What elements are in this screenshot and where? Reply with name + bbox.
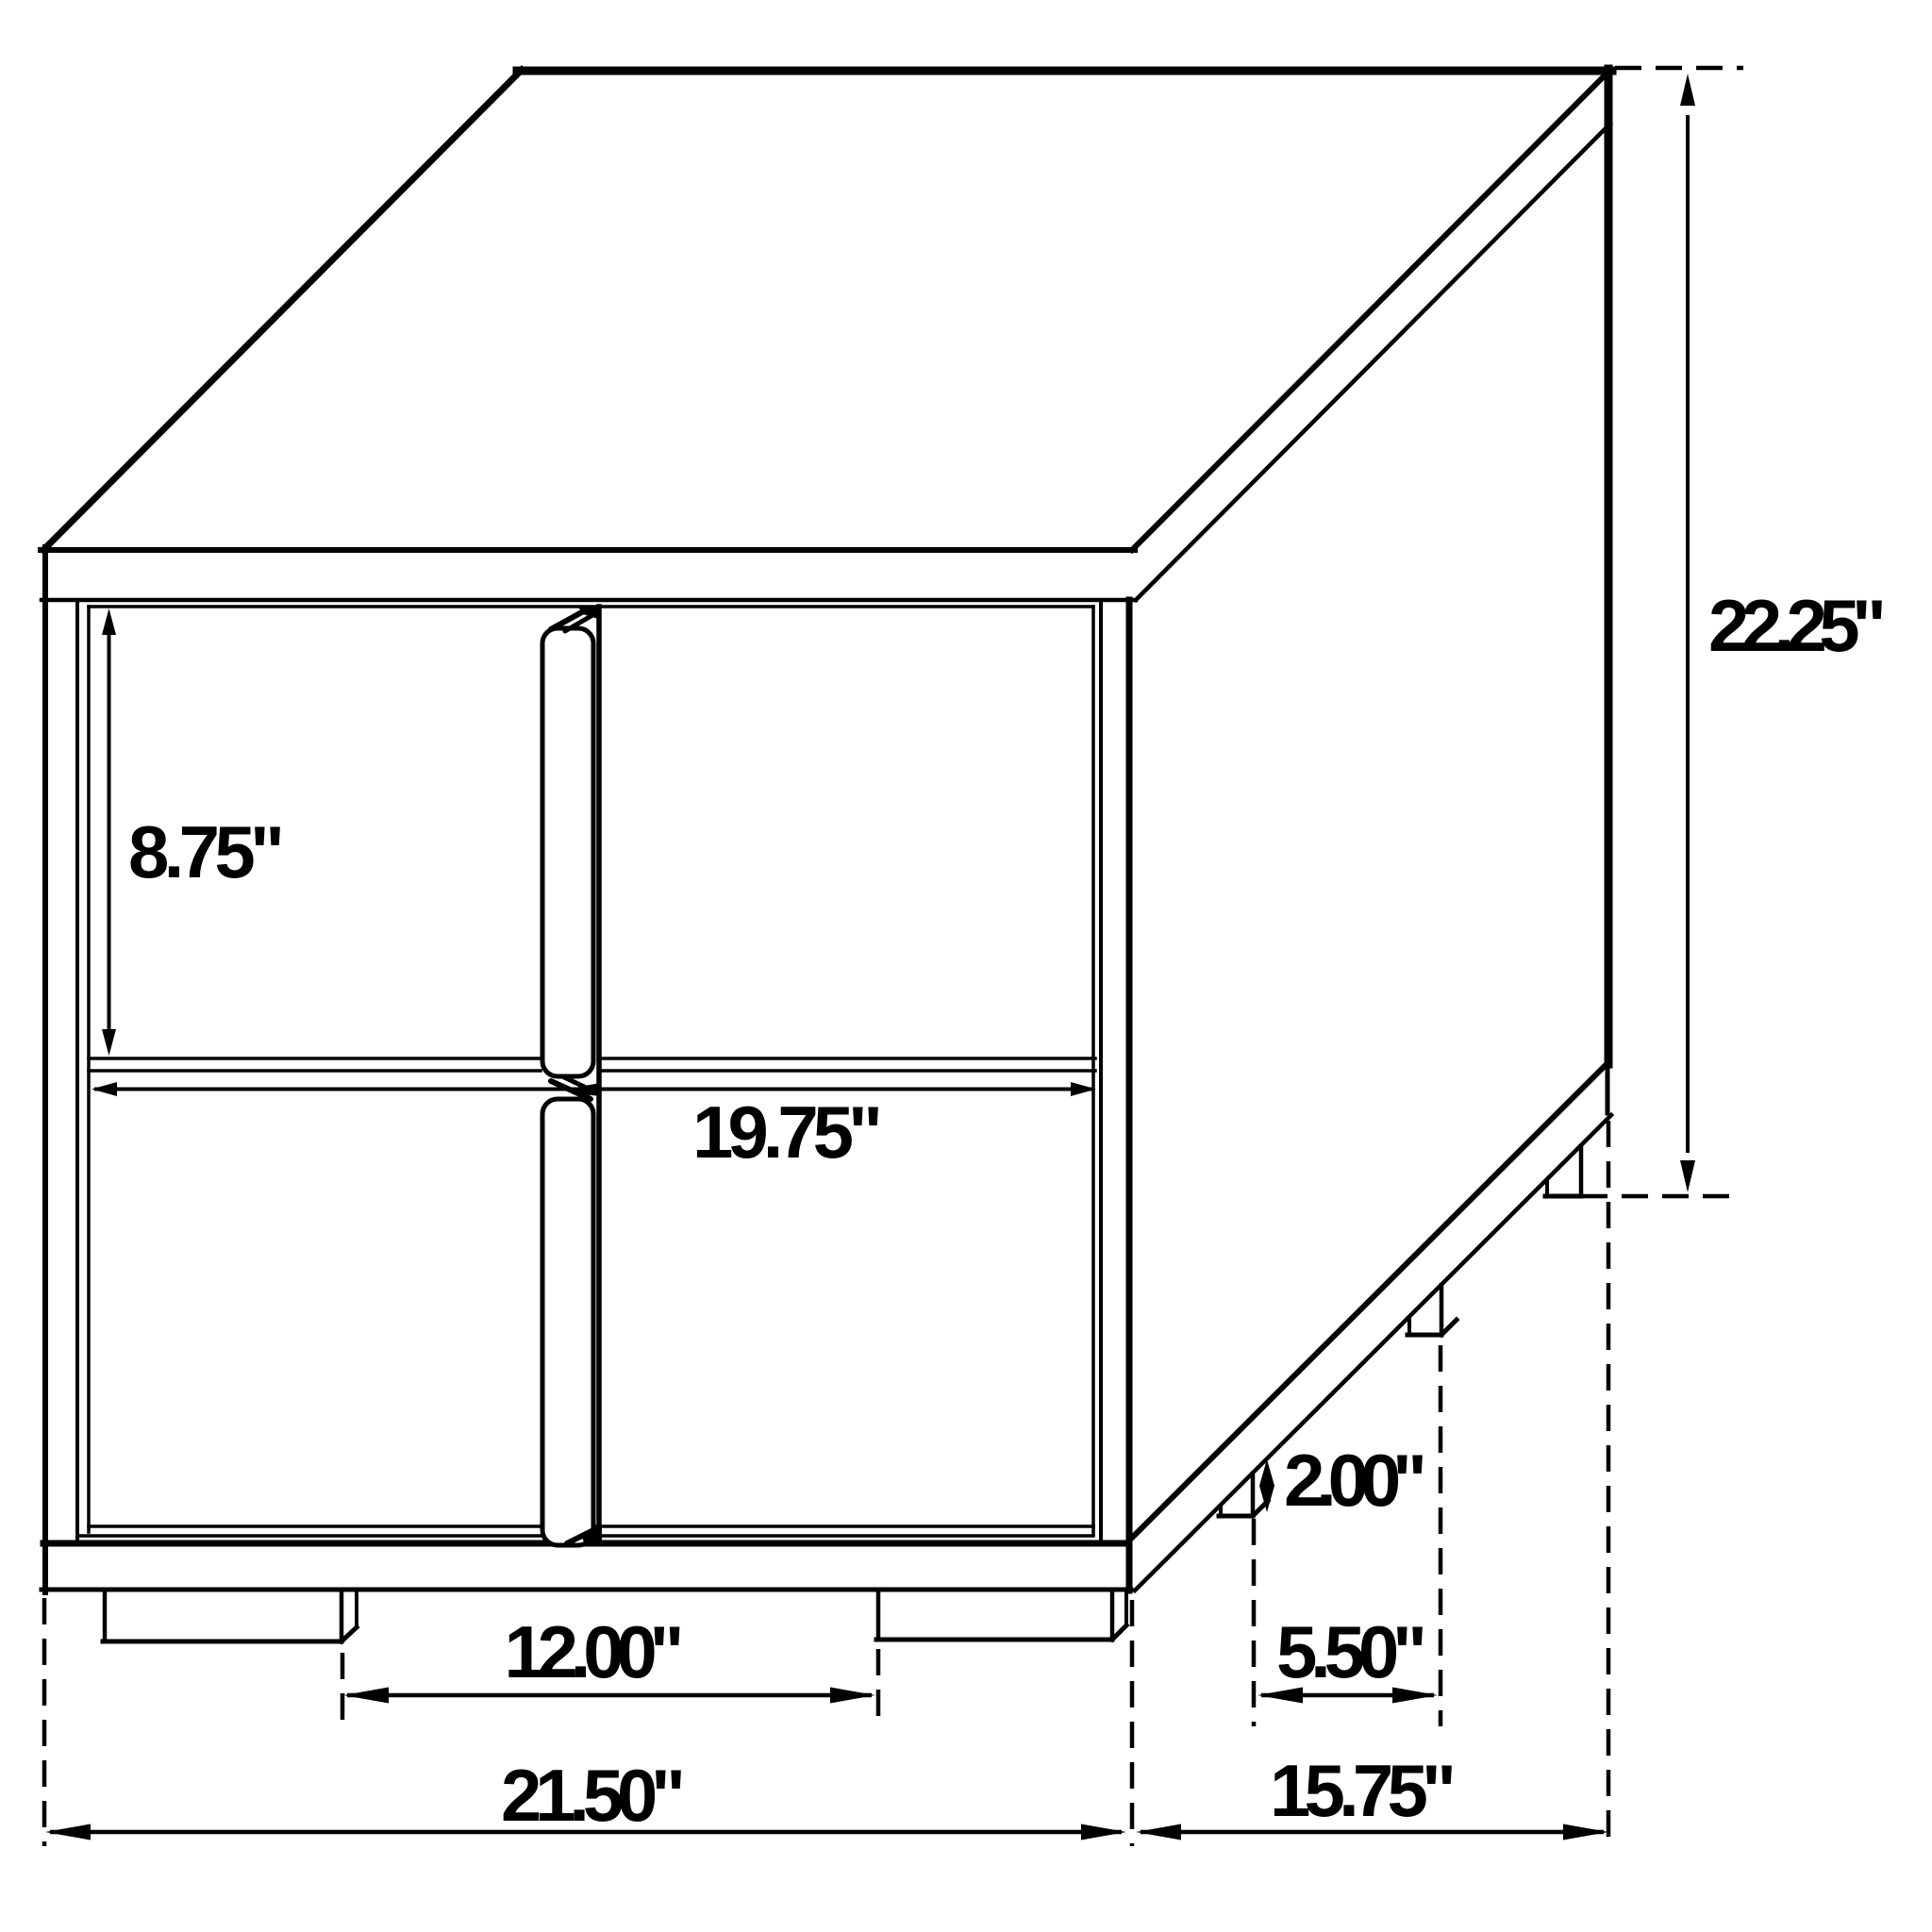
svg-text:21.50": 21.50" (501, 1754, 686, 1837)
svg-text:5.50": 5.50" (1276, 1610, 1427, 1693)
svg-text:2.00": 2.00" (1284, 1439, 1427, 1522)
svg-text:19.75": 19.75" (692, 1091, 883, 1174)
svg-text:22.25": 22.25" (1708, 584, 1887, 667)
svg-text:8.75": 8.75" (128, 810, 285, 893)
svg-text:15.75": 15.75" (1270, 1749, 1457, 1832)
svg-text:12.00": 12.00" (505, 1610, 685, 1693)
